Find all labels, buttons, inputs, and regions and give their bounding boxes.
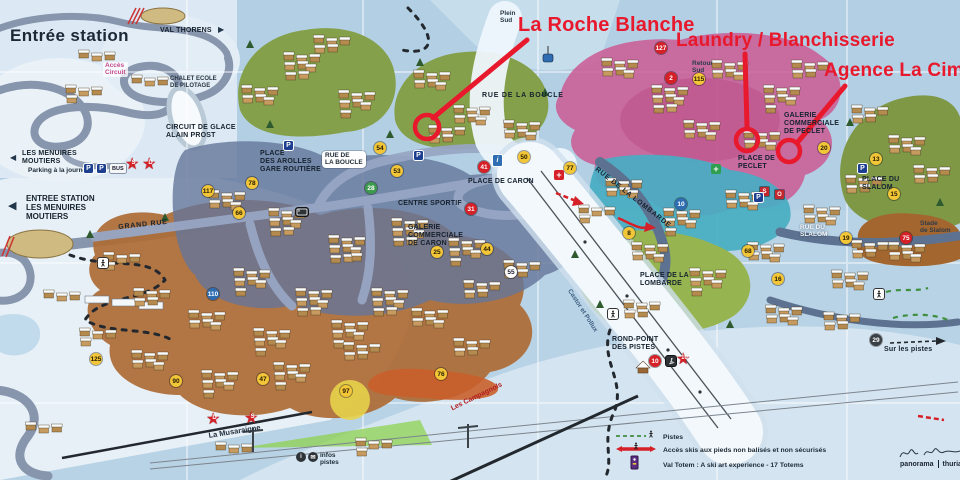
annotation-line-laundry-blanchisserie	[745, 54, 747, 127]
map-artwork	[0, 0, 960, 480]
val-thorens-resort-map: GRAND RUEPLACE DES AROLLES GARE ROUTIÈRE…	[0, 0, 960, 480]
